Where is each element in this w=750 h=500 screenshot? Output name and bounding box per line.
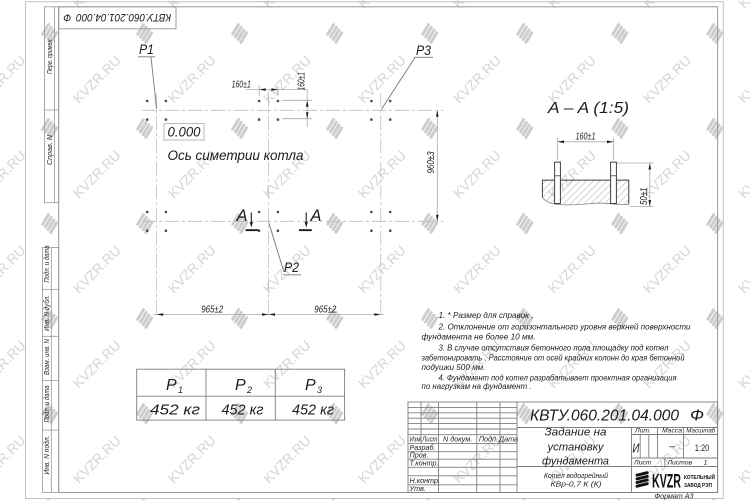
- svg-text:фундамента не более 10 мм.: фундамента не более 10 мм.: [422, 331, 536, 341]
- svg-text:установку: установку: [546, 442, 605, 454]
- svg-text:Формат А3: Формат А3: [655, 491, 695, 500]
- svg-text:Листов: Листов: [666, 459, 692, 466]
- svg-text:A: A: [236, 207, 248, 225]
- svg-text:P1: P1: [139, 42, 154, 57]
- svg-text:2. Отклонение от горизонтальн: 2. Отклонение от горизонтального уровня …: [438, 322, 691, 332]
- svg-text:P: P: [305, 377, 316, 394]
- svg-text:P2: P2: [284, 260, 299, 275]
- svg-text:Подп.: Подп.: [479, 434, 498, 443]
- svg-text:Ось симетрии котла: Ось симетрии котла: [168, 147, 304, 163]
- svg-text:Ф: Ф: [690, 408, 704, 425]
- svg-text:KVZR: KVZR: [652, 471, 681, 493]
- svg-text:3: 3: [317, 385, 322, 395]
- svg-text:965±2: 965±2: [314, 305, 336, 316]
- svg-text:Т.контр.: Т.контр.: [410, 459, 439, 468]
- svg-text:0.000: 0.000: [168, 125, 201, 140]
- svg-text:Масштаб: Масштаб: [686, 427, 716, 435]
- svg-text:Утв.: Утв.: [409, 484, 426, 493]
- svg-text:50±1: 50±1: [639, 187, 650, 205]
- svg-text:Масса: Масса: [662, 428, 682, 435]
- svg-text:Лит.: Лит.: [634, 428, 651, 435]
- svg-text:И: И: [632, 441, 640, 456]
- svg-text:452 кг: 452 кг: [222, 403, 264, 419]
- svg-text:Инв. N подл.: Инв. N подл.: [43, 435, 51, 474]
- svg-text:160±1: 160±1: [232, 80, 251, 91]
- svg-text:2: 2: [246, 385, 252, 395]
- svg-text:960±3: 960±3: [426, 151, 437, 173]
- svg-text:N докум.: N докум.: [443, 434, 472, 443]
- svg-text:965±2: 965±2: [201, 305, 223, 316]
- svg-text:КВТУ.060.201.04.000 Ф: КВТУ.060.201.04.000 Ф: [63, 11, 171, 23]
- svg-text:по нагрузкам на фундамент .: по нагрузкам на фундамент .: [422, 381, 532, 391]
- svg-text:1:20: 1:20: [695, 443, 710, 454]
- svg-text:фундамента: фундамента: [542, 456, 609, 468]
- svg-text:Подп. и дата: Подп. и дата: [43, 245, 51, 282]
- svg-text:A – A (1:5): A – A (1:5): [547, 100, 629, 117]
- svg-text:ЗАВОД РЭП: ЗАВОД РЭП: [684, 483, 712, 489]
- svg-text:P3: P3: [416, 43, 431, 58]
- svg-text:P: P: [166, 377, 177, 394]
- svg-text:Задание на: Задание на: [545, 427, 607, 439]
- svg-text:Взам. инв. N: Взам. инв. N: [44, 338, 51, 375]
- svg-text:452 кг: 452 кг: [292, 403, 334, 419]
- svg-text:Инв. N дубл.: Инв. N дубл.: [43, 295, 51, 331]
- svg-text:3. В случае отсутствия бетонн: 3. В случае отсутствия бетонного пола пл…: [439, 343, 669, 353]
- svg-text:1: 1: [178, 385, 183, 395]
- svg-text:1: 1: [704, 459, 708, 466]
- svg-text:A: A: [310, 207, 322, 225]
- svg-text:КОТЕЛЬНЫЙ: КОТЕЛЬНЫЙ: [684, 473, 715, 481]
- svg-text:Дата: Дата: [498, 434, 518, 443]
- svg-text:Перв. примен.: Перв. примен.: [47, 38, 54, 74]
- svg-text:–: –: [669, 442, 675, 453]
- svg-text:КВТУ.060.201.04.000: КВТУ.060.201.04.000: [530, 408, 679, 425]
- svg-text:P: P: [235, 377, 246, 394]
- svg-text:1. * Размер для справок .: 1. * Размер для справок .: [439, 310, 534, 320]
- svg-text:Подп. и дата: Подп. и дата: [43, 385, 51, 422]
- svg-text:452 кг: 452 кг: [150, 403, 200, 419]
- svg-text:КВр-0,7 К (К): КВр-0,7 К (К): [551, 480, 603, 489]
- svg-text:160±1: 160±1: [576, 131, 596, 142]
- svg-text:Лист: Лист: [633, 459, 652, 466]
- svg-text:Справ. N: Справ. N: [47, 134, 54, 165]
- svg-text:подушки 500 мм.: подушки 500 мм.: [422, 362, 486, 372]
- svg-text:160±1: 160±1: [297, 72, 308, 90]
- svg-text:забетонировать . Расстояние о: забетонировать . Расстояние от осей край…: [421, 352, 685, 362]
